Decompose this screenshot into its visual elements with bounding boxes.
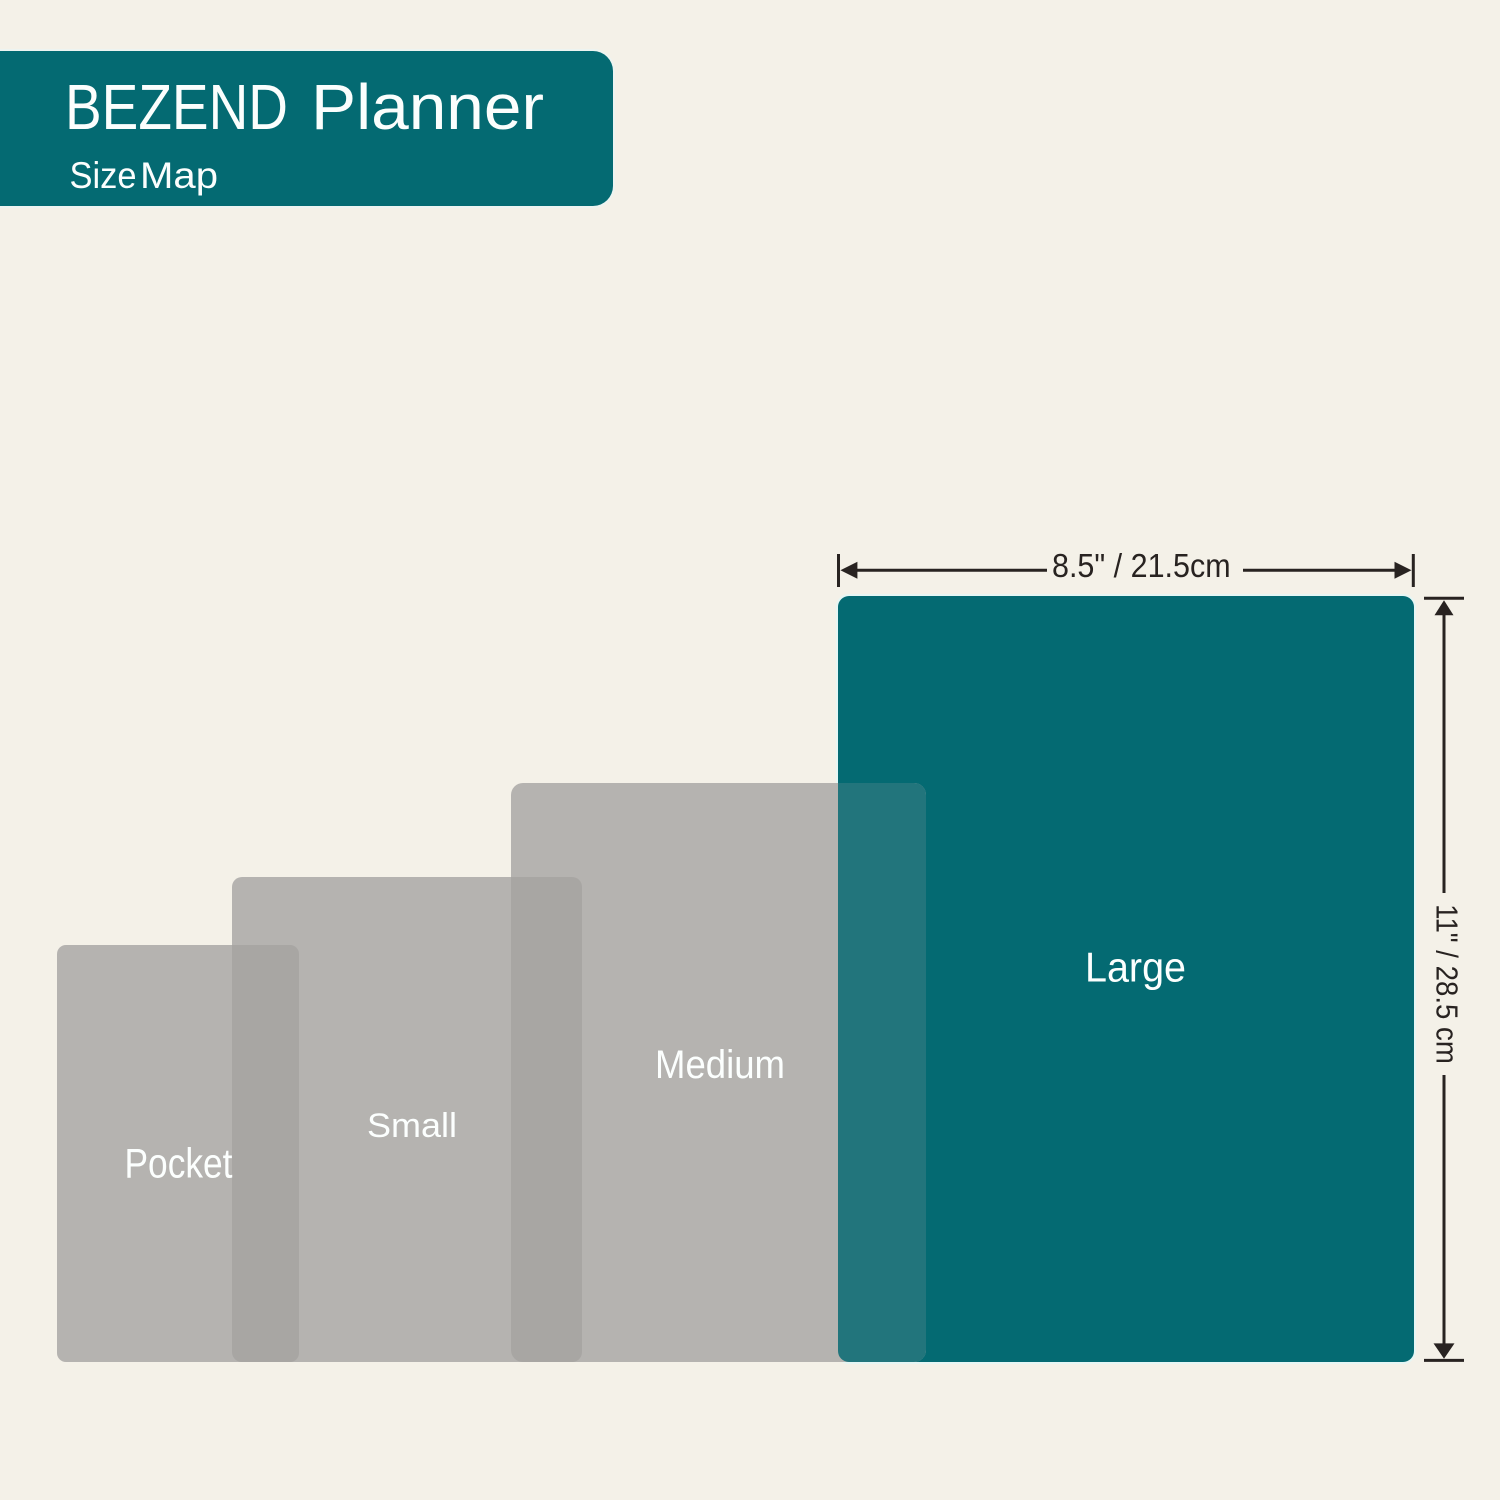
svg-text:Planner: Planner — [311, 71, 544, 143]
svg-text:BEZEND: BEZEND — [65, 71, 288, 143]
svg-text:Map: Map — [140, 155, 218, 196]
svg-text:Small: Small — [367, 1107, 457, 1145]
svg-text:Size: Size — [70, 155, 137, 196]
svg-text:11" / 28.5 cm: 11" / 28.5 cm — [1430, 904, 1465, 1064]
svg-text:Large: Large — [1085, 944, 1186, 991]
svg-text:Pocket: Pocket — [125, 1140, 233, 1187]
svg-text:Medium: Medium — [655, 1043, 785, 1087]
svg-text:8.5" / 21.5cm: 8.5" / 21.5cm — [1052, 547, 1231, 584]
